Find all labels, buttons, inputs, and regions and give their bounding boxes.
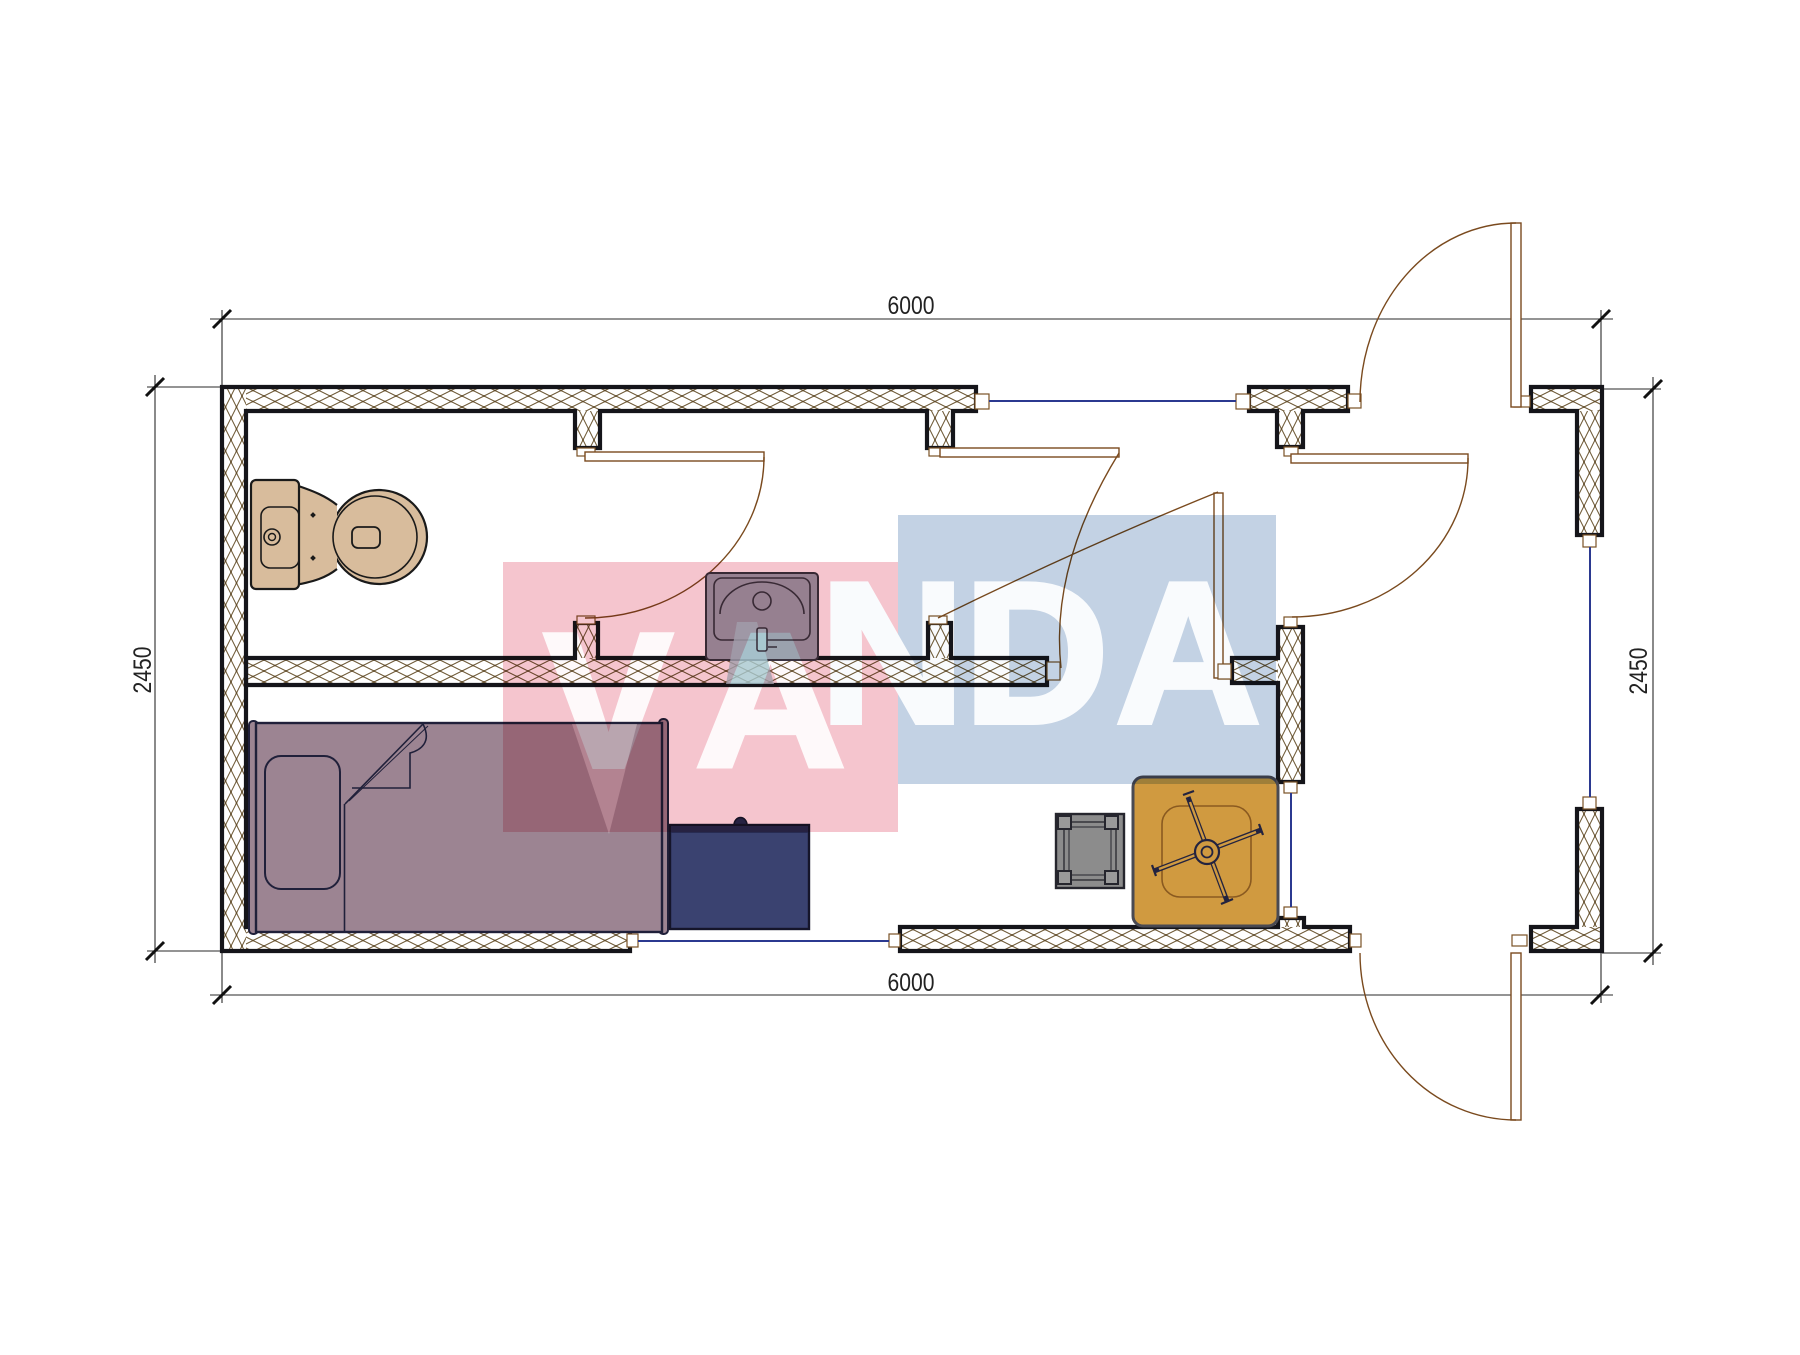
svg-text:6000: 6000 — [888, 969, 935, 997]
svg-text:6000: 6000 — [888, 292, 935, 320]
svg-text:2450: 2450 — [1625, 648, 1653, 695]
svg-text:V: V — [545, 595, 672, 807]
svg-text:2450: 2450 — [129, 647, 157, 694]
svg-text:A: A — [1116, 542, 1260, 765]
svg-text:D: D — [964, 542, 1108, 765]
svg-text:N: N — [820, 542, 964, 765]
